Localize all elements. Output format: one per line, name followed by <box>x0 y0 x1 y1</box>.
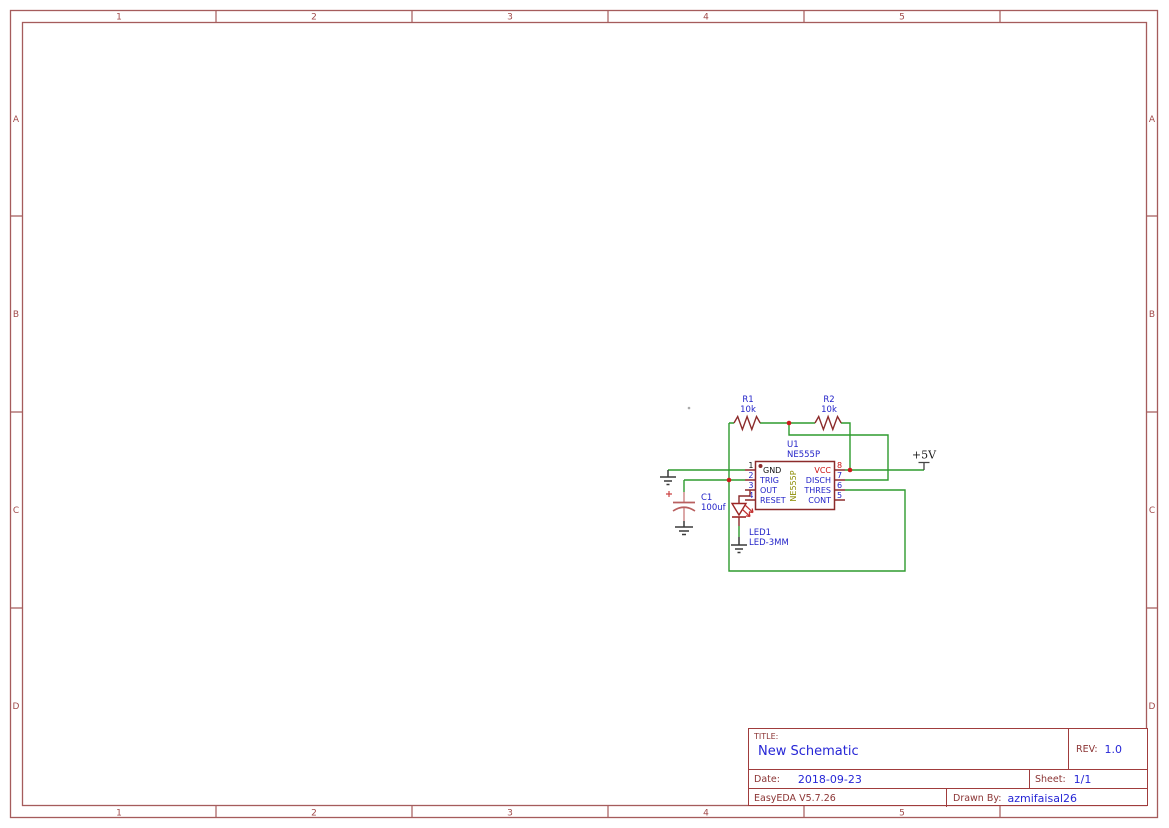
circuit: R1 10k R2 10k U1 NE555P NE555P 1 2 3 4 G… <box>660 395 937 571</box>
frame-row-label: B <box>13 310 19 320</box>
date-label: Date: <box>754 774 780 785</box>
frame-row-label: D <box>13 702 20 712</box>
tool-version: EasyEDA V5.7.26 <box>754 793 836 804</box>
resistor-ref: R1 <box>742 395 753 405</box>
led-ref: LED1 <box>749 528 771 538</box>
sheet-value[interactable]: 1/1 <box>1074 773 1092 786</box>
frame-tick-marks <box>11 11 1158 818</box>
ic-ref: U1 <box>787 440 799 450</box>
ic-u1-ne555p[interactable]: U1 NE555P NE555P 1 2 3 4 GND TRIG OUT RE… <box>745 440 845 510</box>
junction-dot <box>727 478 732 483</box>
schematic-sheet: 1 2 3 4 5 1 2 3 4 5 A B C D A B C D R1 1… <box>0 0 1169 828</box>
power-flag-5v[interactable]: +5V <box>912 449 937 471</box>
frame-col-label: 1 <box>116 809 122 819</box>
frame-col-label: 5 <box>899 809 905 819</box>
resistor-r1[interactable]: R1 10k <box>734 395 760 430</box>
resistor-ref: R2 <box>823 395 834 405</box>
frame-col-label: 5 <box>899 13 905 23</box>
rev-label: REV: <box>1076 744 1098 755</box>
rev-cell: REV: 1.0 <box>1068 729 1147 769</box>
pin-name: THRES <box>803 486 831 495</box>
power-flag-label: +5V <box>912 449 937 462</box>
frame-inner-border <box>23 23 1147 806</box>
rev-value[interactable]: 1.0 <box>1105 743 1123 756</box>
frame-row-label: D <box>1149 702 1156 712</box>
frame-row-label: A <box>1149 115 1156 125</box>
schematic-title[interactable]: New Schematic <box>758 744 1068 759</box>
sheet-frame: 1 2 3 4 5 1 2 3 4 5 A B C D A B C D <box>11 11 1158 819</box>
frame-col-label: 3 <box>507 13 513 23</box>
frame-row-label: A <box>13 115 20 125</box>
ic-body-label: NE555P <box>789 470 798 501</box>
polarity-plus-sign <box>666 491 672 497</box>
pin-name: DISCH <box>806 476 831 485</box>
pin1-marker-dot <box>759 464 763 468</box>
frame-col-label: 1 <box>116 13 122 23</box>
frame-outer-border <box>11 11 1158 818</box>
junction-dot <box>787 421 792 426</box>
drawn-by-value[interactable]: azmifaisal26 <box>1008 792 1077 805</box>
drawn-by-cell: Drawn By: azmifaisal26 <box>946 789 1147 807</box>
resistor-value: 10k <box>821 405 837 415</box>
pin-number: 8 <box>837 461 842 470</box>
pin-number: 5 <box>837 491 842 500</box>
capacitor-value: 100uf <box>701 503 727 513</box>
resistor-r2[interactable]: R2 10k <box>815 395 841 430</box>
ground-glyph <box>660 470 676 485</box>
frame-row-label: C <box>1149 506 1155 516</box>
sheet-cell: Sheet: 1/1 <box>1029 770 1147 788</box>
resistor-body <box>734 417 760 430</box>
resistor-value: 10k <box>740 405 756 415</box>
ground-symbol[interactable] <box>660 470 676 485</box>
pin-name: TRIG <box>759 476 779 485</box>
frame-col-label: 2 <box>311 13 317 23</box>
title-block-row-tool: EasyEDA V5.7.26 Drawn By: azmifaisal26 <box>749 788 1147 807</box>
pin-name: VCC <box>814 466 831 475</box>
ground-glyph <box>731 537 747 553</box>
ground-glyph <box>675 521 693 535</box>
pin-name: OUT <box>760 486 777 495</box>
ground-symbol[interactable] <box>675 521 693 535</box>
frame-row-label: C <box>13 506 19 516</box>
capacitor-c1[interactable]: C1 100uf <box>666 491 727 521</box>
led-triangle <box>732 504 746 516</box>
power-flag-glyph <box>919 463 930 471</box>
date-value[interactable]: 2018-09-23 <box>798 773 862 786</box>
capacitor-ref: C1 <box>701 493 712 503</box>
resistor-body <box>815 417 841 430</box>
led-value: LED-3MM <box>749 538 789 548</box>
pin-number: 7 <box>837 471 842 480</box>
tool-version-cell: EasyEDA V5.7.26 <box>749 789 946 807</box>
frame-col-label: 4 <box>703 13 709 23</box>
frame-col-label: 3 <box>507 809 513 819</box>
frame-col-label: 2 <box>311 809 317 819</box>
title-block-row-date: Date: 2018-09-23 Sheet: 1/1 <box>749 769 1147 788</box>
pin-number: 6 <box>837 481 842 490</box>
junction-dot <box>848 468 853 473</box>
canvas-origin-dot <box>688 407 691 410</box>
pin-name: CONT <box>808 496 831 505</box>
title-block-row-title: TITLE: New Schematic REV: 1.0 <box>749 729 1147 769</box>
ground-symbol[interactable] <box>731 537 747 553</box>
pin-name: RESET <box>760 496 786 505</box>
ic-part: NE555P <box>787 450 820 460</box>
schematic-canvas: 1 2 3 4 5 1 2 3 4 5 A B C D A B C D R1 1… <box>0 0 1169 828</box>
drawn-by-label: Drawn By: <box>953 793 1002 804</box>
pin-name: GND <box>763 466 781 475</box>
sheet-label: Sheet: <box>1035 774 1066 785</box>
frame-row-label: B <box>1149 310 1155 320</box>
title-cell: TITLE: New Schematic <box>749 729 1068 769</box>
frame-col-label: 4 <box>703 809 709 819</box>
pin-number: 2 <box>748 471 753 480</box>
pin-number: 3 <box>748 481 753 490</box>
title-block: TITLE: New Schematic REV: 1.0 Date: 2018… <box>748 728 1148 806</box>
date-cell: Date: 2018-09-23 <box>749 770 1029 788</box>
title-label: TITLE: <box>754 732 1068 741</box>
pin-number: 1 <box>748 461 753 470</box>
